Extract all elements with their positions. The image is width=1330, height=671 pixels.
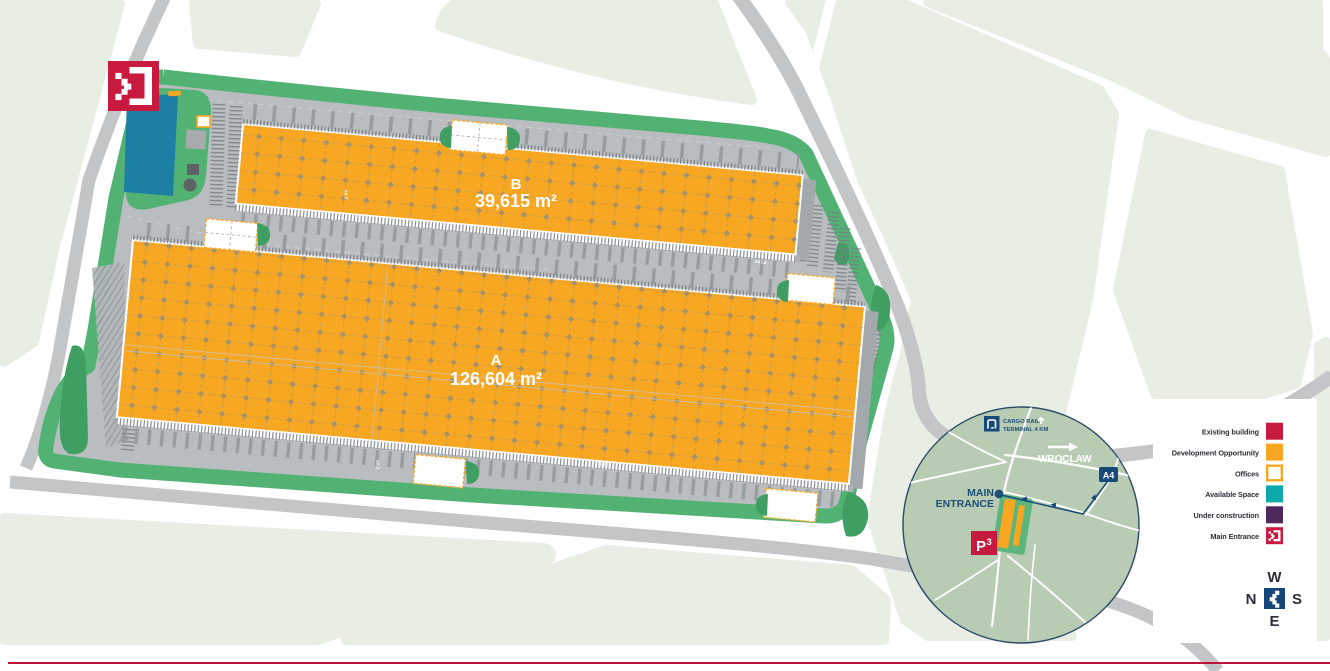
svg-text:A: A <box>491 352 502 369</box>
svg-text:A4: A4 <box>1103 471 1115 481</box>
svg-text:W: W <box>1267 569 1282 586</box>
svg-text:N: N <box>1246 591 1257 608</box>
svg-text:Offices: Offices <box>1235 469 1259 478</box>
svg-text:E: E <box>1269 613 1279 630</box>
svg-text:Available Space: Available Space <box>1205 490 1259 499</box>
svg-text:126,604 m²: 126,604 m² <box>450 369 542 389</box>
svg-text:Development Opportunity: Development Opportunity <box>1172 448 1260 457</box>
svg-text:P: P <box>976 538 986 555</box>
svg-text:Under construction: Under construction <box>1194 511 1260 520</box>
svg-text:Main Entrance: Main Entrance <box>1210 532 1259 541</box>
svg-text:S: S <box>1292 591 1302 608</box>
svg-text:TERMINAL 4 KM: TERMINAL 4 KM <box>1003 427 1048 433</box>
svg-text:3: 3 <box>987 537 992 548</box>
svg-text:1A.1: 1A.1 <box>375 460 381 470</box>
svg-text:64 L2: 64 L2 <box>755 259 767 265</box>
svg-text:Existing building: Existing building <box>1202 428 1259 437</box>
svg-text:WROCLAW: WROCLAW <box>1038 454 1092 465</box>
svg-text:39,615 m²: 39,615 m² <box>475 191 557 211</box>
svg-text:7A.2: 7A.2 <box>343 190 349 200</box>
svg-text:CARGO RAIL: CARGO RAIL <box>1003 419 1040 425</box>
svg-text:ENTRANCE: ENTRANCE <box>936 498 994 510</box>
